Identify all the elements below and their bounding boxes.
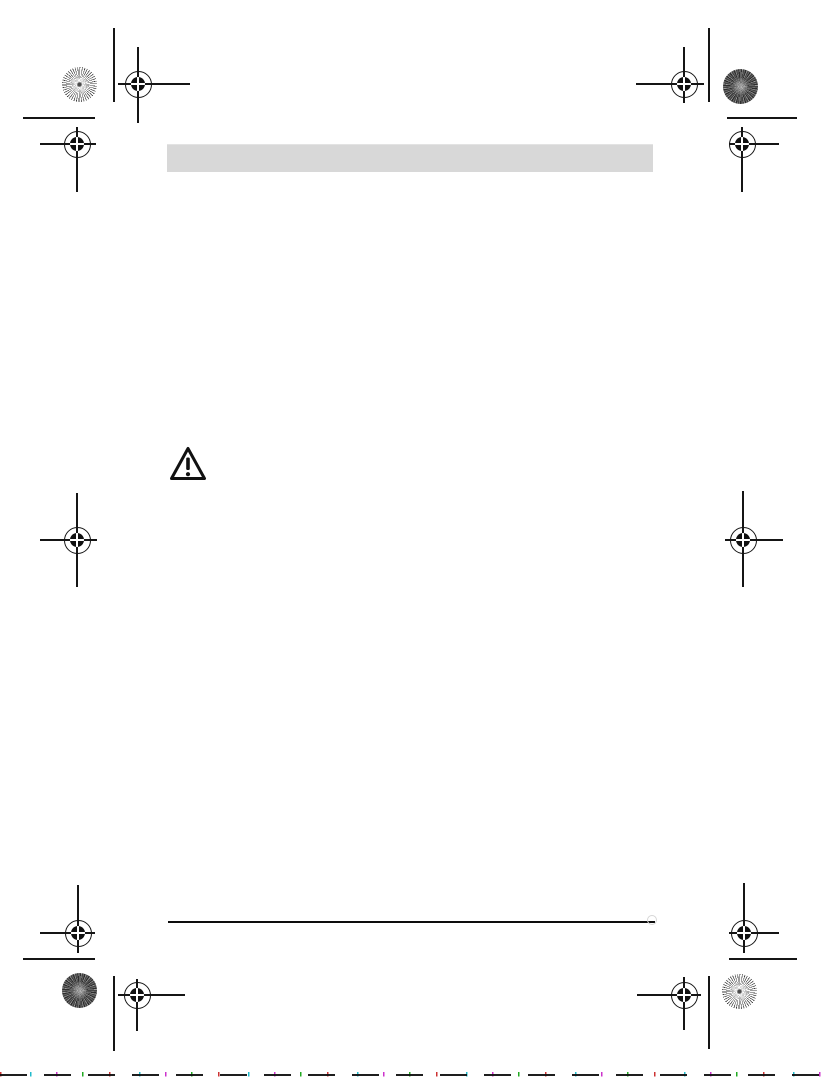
short-rule-bottom-right bbox=[729, 958, 797, 960]
scanned-document-page bbox=[0, 0, 823, 1079]
short-rule-top-right bbox=[727, 117, 797, 119]
crop-line-bottom-right bbox=[708, 976, 710, 1049]
page-header-bar bbox=[167, 144, 653, 172]
footer-rule bbox=[168, 921, 655, 923]
color-patch-sunburst-icon bbox=[722, 974, 757, 1009]
warning-triangle-icon bbox=[167, 444, 209, 486]
crop-line-bottom-left bbox=[113, 976, 115, 1051]
crop-line-top-right bbox=[708, 28, 710, 102]
short-rule-bottom-left bbox=[23, 958, 95, 960]
color-patch-halftone-icon bbox=[723, 69, 758, 104]
short-rule-top-left bbox=[23, 117, 95, 119]
scan-artifact-ring bbox=[647, 915, 657, 925]
crop-line-top-left bbox=[113, 28, 115, 102]
color-patch-sunburst-icon bbox=[62, 67, 97, 102]
color-patch-halftone-icon bbox=[62, 973, 97, 1008]
scan-noise-strip bbox=[0, 1071, 823, 1078]
